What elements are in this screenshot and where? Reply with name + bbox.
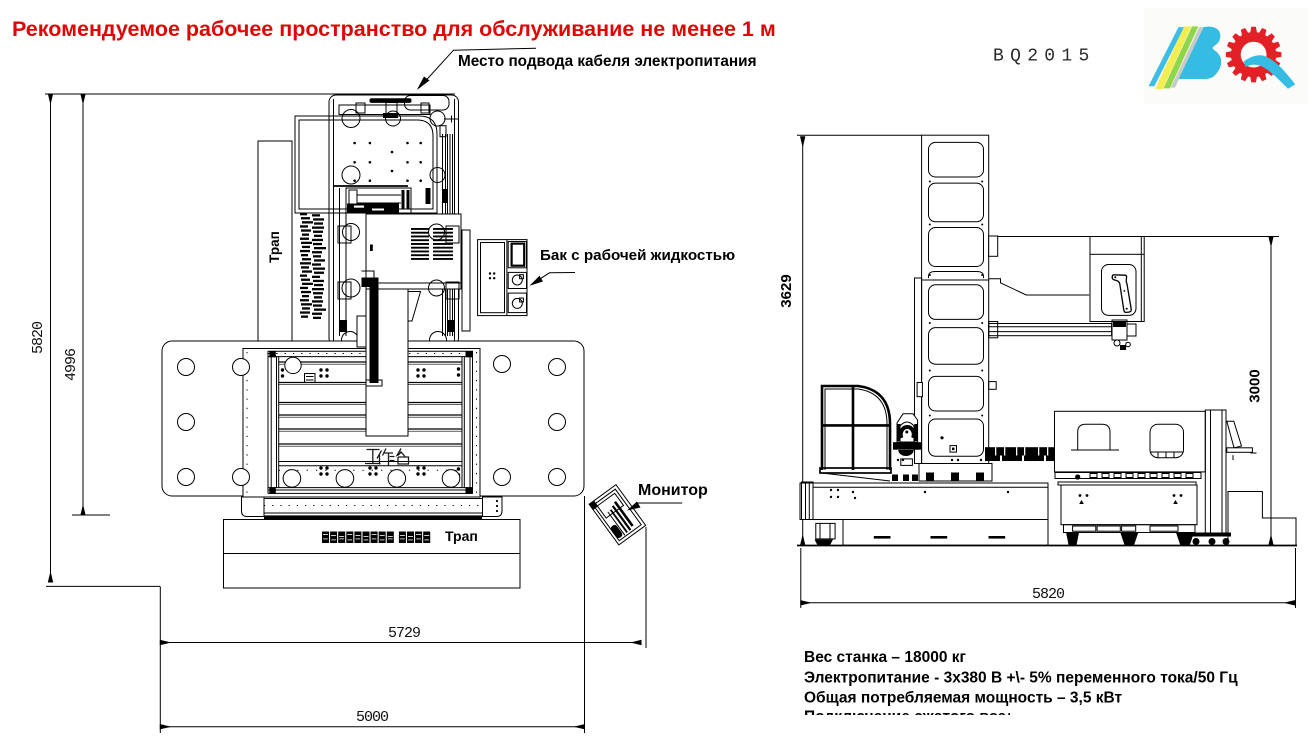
svg-text:5729: 5729 [388, 625, 420, 642]
svg-text:Общая потребляемая мощность –: Общая потребляемая мощность – 3,5 кВт [804, 690, 1123, 707]
svg-text:5820: 5820 [30, 321, 47, 354]
svg-text:Электропитание - 3х380 В +\- 5: Электропитание - 3х380 В +\- 5% переменн… [804, 669, 1238, 686]
svg-text:BQ2015: BQ2015 [993, 47, 1096, 67]
svg-text:Бак с рабочей жидкостью: Бак с рабочей жидкостью [540, 247, 735, 264]
svg-text:Вес станка – 18000 кг: Вес станка – 18000 кг [804, 649, 967, 666]
svg-text:Трап: Трап [267, 231, 282, 263]
svg-text:Рекомендуемое рабочее простран: Рекомендуемое рабочее пространство для о… [12, 17, 776, 41]
svg-text:Трап: Трап [445, 528, 478, 544]
svg-text:3629: 3629 [778, 274, 795, 307]
svg-text:Монитор: Монитор [638, 482, 708, 499]
svg-text:Место подвода кабеля электропи: Место подвода кабеля электропитания [458, 53, 757, 70]
svg-text:3000: 3000 [1247, 369, 1264, 402]
svg-text:4996: 4996 [63, 348, 80, 381]
svg-text:5820: 5820 [1032, 586, 1065, 603]
svg-text:5000: 5000 [356, 709, 389, 726]
